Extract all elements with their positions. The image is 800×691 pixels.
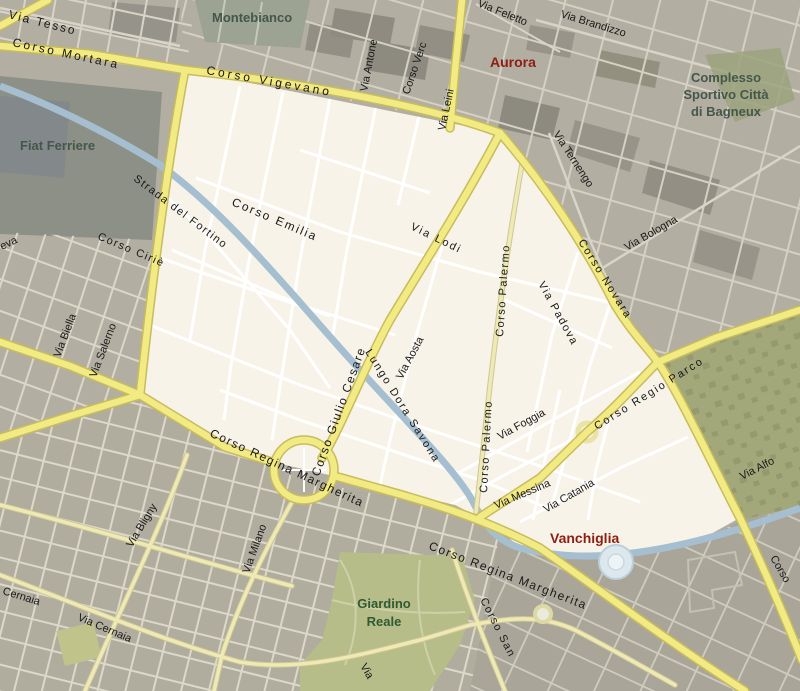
place-label-montebianco: Montebianco [212, 10, 292, 25]
place-label-giardino-line2: Reale [367, 614, 402, 629]
map-canvas[interactable]: Via Tesso Corso Mortara Corso Vigevano V… [0, 0, 800, 691]
place-label-giardino-line1: Giardino [357, 596, 411, 611]
street-map: Via Tesso Corso Mortara Corso Vigevano V… [0, 0, 800, 691]
district-label-aurora: Aurora [490, 54, 536, 70]
district-label-vanchiglia: Vanchiglia [550, 530, 619, 546]
place-label-complesso-line3: di Bagneux [691, 104, 762, 119]
fountain-plaza [599, 545, 633, 579]
place-label-complesso-line1: Complesso [691, 70, 761, 85]
place-label-complesso-line2: Sportivo Città [683, 87, 769, 102]
place-label-fiat-ferriere: Fiat Ferriere [20, 138, 95, 153]
